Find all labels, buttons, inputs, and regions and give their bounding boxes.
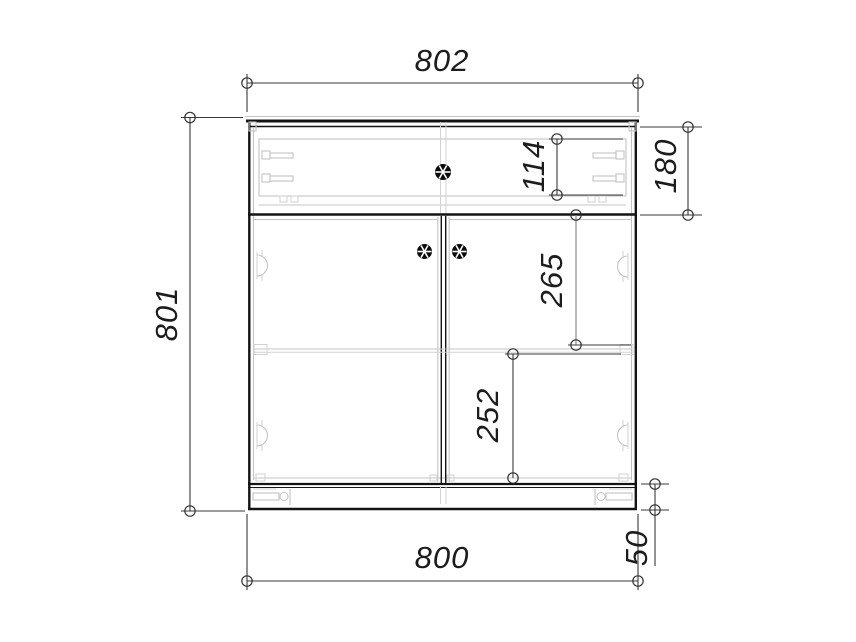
countertop [245,117,640,127]
drawer-slide-left-icon [262,151,298,202]
hinge-icon-bottom-left [257,420,268,451]
drawer-knob [435,164,451,180]
cabinet-technical-drawing: 802 801 800 180 114 [0,0,856,642]
hinge-icon-top-left [257,250,268,281]
dim-upper-door-label: 265 [534,253,569,309]
hinge-icon-top-right [618,251,629,282]
dimension-drawer-front-height: 114 [516,134,623,200]
dim-lower-door-label: 252 [470,388,505,444]
dimension-plinth-height: 50 [619,479,669,566]
dim-drawer-front-label: 114 [516,140,551,192]
dimension-overall-height: 801 [149,112,245,516]
dimension-lower-door-offset: 252 [470,349,621,483]
dimension-drawer-section-height: 180 [640,122,702,220]
drawing-canvas: 802 801 800 180 114 [0,0,856,642]
dim-overall-width-label: 802 [415,43,470,78]
shelf-line [254,345,633,355]
hinge-icon-bottom-right [618,420,629,451]
foot-icon-right [595,489,632,505]
dim-body-width-label: 800 [415,540,470,575]
dim-drawer-section-label: 180 [648,139,683,194]
left-door-knob [417,244,432,259]
foot-icon-left [253,489,290,505]
dimension-upper-door-offset: 265 [534,210,631,350]
right-door-knob [452,244,467,259]
dim-plinth-label: 50 [619,530,654,566]
drawer-section [259,122,626,213]
dim-overall-height-label: 801 [149,287,184,342]
dimension-body-width: 800 [242,514,643,590]
plinth [253,486,632,505]
dimension-overall-width: 802 [242,43,643,112]
drawer-slide-right-icon [588,151,624,202]
